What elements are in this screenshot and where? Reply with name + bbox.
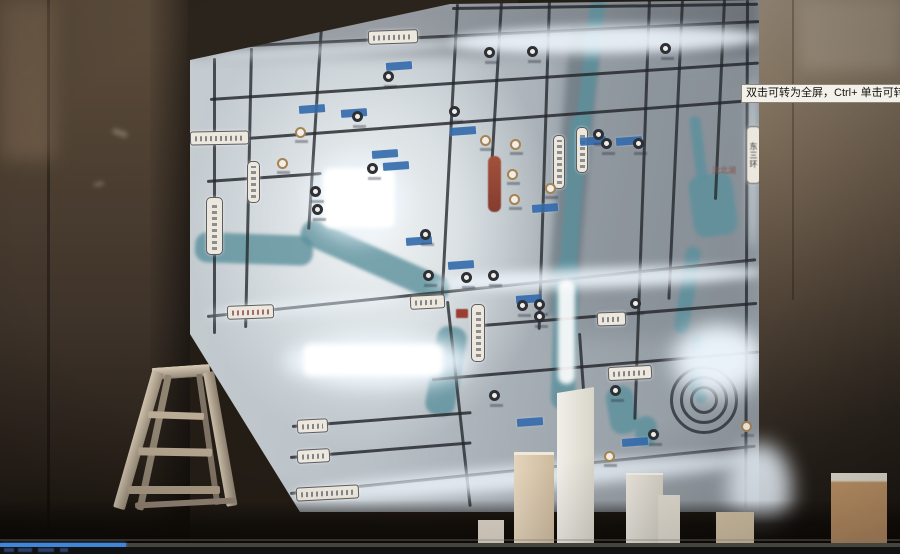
map-road — [440, 4, 459, 302]
map-icon — [648, 429, 659, 440]
map-chip — [532, 203, 558, 213]
foam-pillar — [557, 387, 594, 554]
map-icon — [604, 451, 615, 462]
map-icon — [420, 229, 431, 240]
map-icon — [352, 111, 363, 122]
cutoff-text-smudge — [38, 548, 54, 552]
fullscreen-tooltip: 双击可转为全屏，Ctrl+ 单击可转为 — [741, 84, 900, 103]
video-frame[interactable]: 东三环沈北湖 双击可转为全屏，Ctrl+ 单击可转为 — [0, 0, 900, 554]
map-icon — [312, 204, 323, 215]
map-road — [633, 0, 651, 420]
wall-highlight — [0, 0, 55, 160]
map-sign — [368, 29, 418, 45]
map-icon — [489, 390, 500, 401]
map-lightbox: 东三环沈北湖 — [188, 0, 759, 514]
map-sign-vertical — [576, 127, 588, 173]
map-icon — [295, 127, 306, 138]
map-icon — [601, 138, 612, 149]
map-icon — [277, 158, 288, 169]
map-chip — [448, 260, 474, 270]
map-icon — [367, 163, 378, 174]
video-controls-strip — [0, 547, 900, 554]
map-river — [423, 324, 468, 418]
map-icon — [310, 186, 321, 197]
map-icon — [449, 106, 460, 117]
right-wall-highlight — [800, 0, 900, 70]
map-icon — [480, 135, 491, 146]
map-glow — [303, 344, 443, 376]
map-sign-vertical — [206, 197, 223, 255]
map-red-landmark — [488, 156, 501, 212]
map-sign — [608, 365, 653, 381]
map-sign — [297, 448, 331, 464]
map-icon — [383, 71, 394, 82]
right-wall-seam — [792, 0, 794, 300]
foam-pillar — [831, 473, 887, 554]
map-sign-vertical — [553, 135, 565, 189]
map-ring-lake — [695, 391, 707, 403]
map-red-chip — [456, 309, 468, 318]
map-chip — [450, 126, 476, 136]
ladder-rung — [128, 486, 220, 494]
map-sign-vertical — [471, 304, 485, 362]
map-sign — [190, 130, 249, 145]
map-icon — [545, 183, 556, 194]
cutoff-text-smudge — [60, 548, 68, 552]
map-chip — [386, 61, 412, 71]
map-icon — [510, 139, 521, 150]
map-icon — [527, 46, 538, 57]
map-icon — [423, 270, 434, 281]
map-road — [213, 58, 216, 334]
map-river — [550, 260, 579, 411]
map-road — [207, 172, 322, 183]
map-icon — [509, 194, 520, 205]
cutoff-text-smudge — [18, 548, 32, 552]
cutoff-text-smudge — [4, 548, 14, 552]
map-icon — [741, 421, 752, 432]
wall-dark-column — [150, 0, 190, 554]
progress-sheen — [0, 539, 900, 541]
map-icon — [610, 385, 621, 396]
ladder-rung — [138, 447, 212, 456]
map-river — [689, 116, 708, 183]
map-river — [687, 171, 739, 239]
map-glow — [323, 168, 395, 228]
map-sign — [296, 484, 360, 501]
map-icon — [507, 169, 518, 180]
map-icon — [534, 311, 545, 322]
lake-label: 沈北湖 — [712, 165, 736, 176]
map-icon — [484, 47, 495, 58]
map-sign — [410, 294, 446, 310]
map-sign — [597, 311, 626, 326]
map-chip — [372, 149, 398, 159]
map-sign-vertical — [247, 161, 260, 203]
map-icon — [630, 298, 641, 309]
map-river — [673, 245, 702, 334]
map-sign — [227, 304, 274, 320]
map-icon — [461, 272, 472, 283]
map-sign — [297, 418, 329, 434]
map-icon — [488, 270, 499, 281]
map-icon — [660, 43, 671, 54]
map-icon — [633, 138, 644, 149]
map-chip — [299, 104, 325, 114]
ring-road-sign: 东三环 — [746, 126, 761, 184]
map-icon — [534, 299, 545, 310]
map-chip — [383, 161, 409, 171]
map-chip — [517, 417, 543, 427]
map-icon — [517, 300, 528, 311]
